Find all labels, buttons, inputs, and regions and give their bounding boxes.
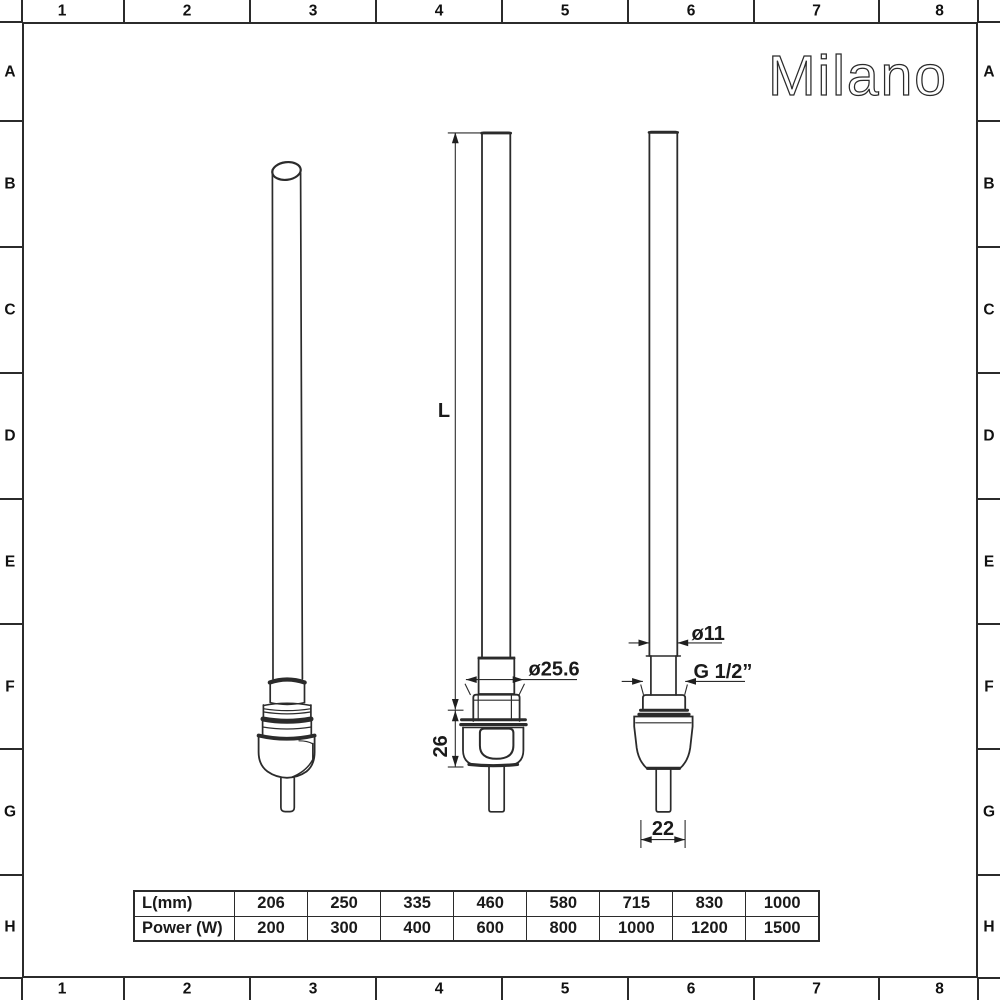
spec-table-cell: 715 [600,891,673,916]
nut-diameter-dimension-label: ø25.6 [529,658,580,680]
perspective-view [259,161,315,812]
body-inner-detail [480,729,514,759]
spec-table-row-label: L(mm) [134,891,235,916]
nut [473,695,519,721]
spec-table-cell: 1000 [746,891,819,916]
sleeve-top-band [270,680,305,683]
cable-pin [489,766,504,812]
tube-outline [482,132,510,657]
length-dimension-label: L [438,400,450,422]
collar [643,695,685,709]
body-width-dimension-label: 22 [652,818,674,840]
spec-table-cell: 250 [308,891,381,916]
side-view [634,132,692,812]
spec-table-cell: 200 [235,916,308,941]
spec-table-cell: 460 [454,891,527,916]
front-view [461,132,526,811]
body-height-dimension-label: 26 [430,735,452,757]
dimension-arrows [452,132,524,766]
spec-table-cell: 830 [673,891,746,916]
technical-drawing: Milano [0,0,1000,1000]
sleeve [479,658,515,695]
brand-logo: Milano [768,44,948,108]
element-body [259,737,315,778]
body-top-band [259,736,315,739]
cable-pin [281,778,294,811]
drawing-sheet: 1122334455667788AABBCCDDEEFFGGHH Milano [0,0,1000,1000]
spec-table-cell: 335 [381,891,454,916]
spec-table-row: L(mm)2062503354605807158301000 [134,891,819,916]
cable-pin [656,770,671,812]
spec-table-cell: 580 [527,891,600,916]
collar-dark-band [263,719,311,721]
spec-table-cell: 1000 [600,916,673,941]
body-bottom-band [469,764,518,765]
spec-table-cell: 1200 [673,916,746,941]
spec-table-cell: 600 [454,916,527,941]
spec-table-cell: 206 [235,891,308,916]
tube-top-ellipse [271,161,302,182]
spec-table-row-label: Power (W) [134,916,235,941]
tube-outline [649,132,677,656]
spec-table-cell: 800 [527,916,600,941]
spec-table-cell: 400 [381,916,454,941]
thread-dimension-label: G 1/2” [694,661,753,683]
spec-table-cell: 300 [308,916,381,941]
element-body [634,717,692,769]
tube-diameter-dimension-label: ø11 [692,623,725,645]
spec-table: L(mm)2062503354605807158301000Power (W)2… [133,890,820,942]
spec-table-cell: 1500 [746,916,819,941]
spec-table-row: Power (W)200300400600800100012001500 [134,916,819,941]
